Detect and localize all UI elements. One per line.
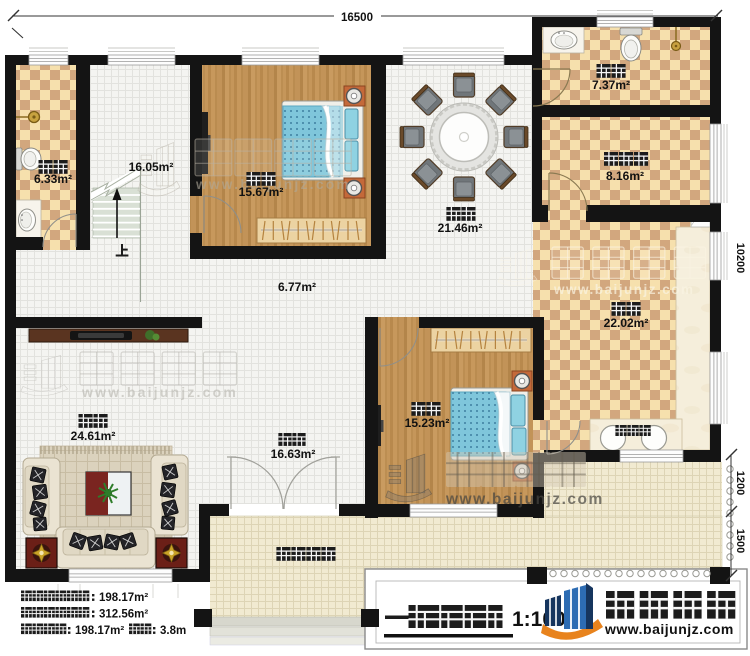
svg-text:21.46m²: 21.46m² <box>438 221 483 235</box>
svg-text:www.baijunjz.com: www.baijunjz.com <box>553 282 695 297</box>
svg-text:198.17m²: 198.17m² <box>75 625 124 637</box>
svg-text:24.61m²: 24.61m² <box>71 429 116 443</box>
svg-text:16500: 16500 <box>341 12 373 24</box>
svg-text:198.17m²: 198.17m² <box>99 592 148 604</box>
svg-text:15.67m²: 15.67m² <box>239 185 284 199</box>
svg-text:www.baijunjz.com: www.baijunjz.com <box>81 384 238 400</box>
svg-text:www.baijunjz.com: www.baijunjz.com <box>445 491 604 508</box>
svg-text:15.23m²: 15.23m² <box>405 416 450 430</box>
svg-text:312.56m²: 312.56m² <box>99 609 148 621</box>
svg-text:10200: 10200 <box>734 243 746 274</box>
svg-text:6.33m²: 6.33m² <box>34 172 72 186</box>
svg-text:22.02m²: 22.02m² <box>604 316 649 330</box>
svg-text:16.05m²: 16.05m² <box>129 160 174 174</box>
svg-text:6.77m²: 6.77m² <box>278 280 316 294</box>
svg-text:7.37m²: 7.37m² <box>592 78 630 92</box>
svg-text:1500: 1500 <box>734 529 746 553</box>
svg-text:www.baijunjz.com: www.baijunjz.com <box>604 621 734 637</box>
svg-text:3.8m: 3.8m <box>160 625 186 637</box>
svg-text:8.16m²: 8.16m² <box>606 169 644 183</box>
svg-text:1200: 1200 <box>734 471 746 495</box>
svg-text:16.63m²: 16.63m² <box>271 447 316 461</box>
